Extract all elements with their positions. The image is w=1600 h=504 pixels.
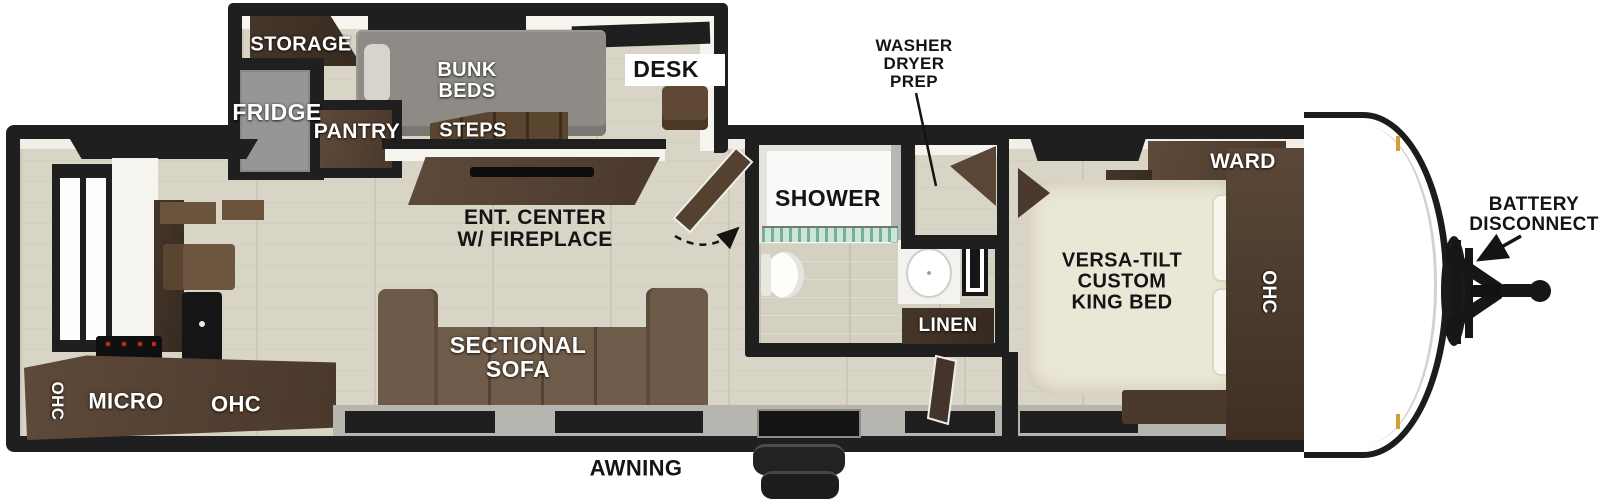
ent-center-label: ENT. CENTER W/ FIREPLACE: [457, 207, 612, 251]
sectional-sofa-label: SECTIONAL SOFA: [450, 333, 587, 381]
micro-label: MICRO: [88, 389, 163, 412]
desk-label: DESK: [633, 57, 699, 81]
floorplan-canvas: STORAGE BUNK BEDS DESK FRIDGE PANTRY STE…: [0, 0, 1600, 504]
bedroom-door: [928, 356, 956, 424]
bunk-beds-label: BUNK BEDS: [437, 60, 496, 102]
storage-label: STORAGE: [250, 35, 351, 56]
pantry-label: PANTRY: [314, 121, 400, 143]
bedroom-corner-cabinet: [1018, 168, 1050, 218]
king-bed-label: VERSA-TILT CUSTOM KING BED: [1062, 251, 1182, 314]
battery-disconnect-label: BATTERY DISCONNECT: [1469, 195, 1599, 235]
awning-label: AWNING: [590, 456, 683, 479]
interior-door: [674, 148, 752, 232]
kitchen-ohc-right-label: OHC: [211, 392, 261, 415]
wd-closet-shelf: [950, 146, 996, 206]
shower-label: SHOWER: [775, 186, 881, 210]
ward-label: WARD: [1210, 151, 1276, 173]
washer-leader-line: [916, 93, 936, 186]
door-swing-arrow-icon: [675, 230, 736, 245]
steps-label: STEPS: [439, 121, 507, 142]
bedroom-ohc-label: OHC: [1258, 270, 1278, 313]
fridge-label: FRIDGE: [232, 100, 321, 124]
linen-label: LINEN: [919, 316, 978, 336]
kitchen-ohc-left-label: OHC: [48, 382, 66, 421]
annotation-overlay: [0, 0, 1600, 504]
washer-dryer-prep-label: WASHER DRYER PREP: [875, 37, 952, 91]
battery-arrow-icon: [1482, 236, 1521, 258]
